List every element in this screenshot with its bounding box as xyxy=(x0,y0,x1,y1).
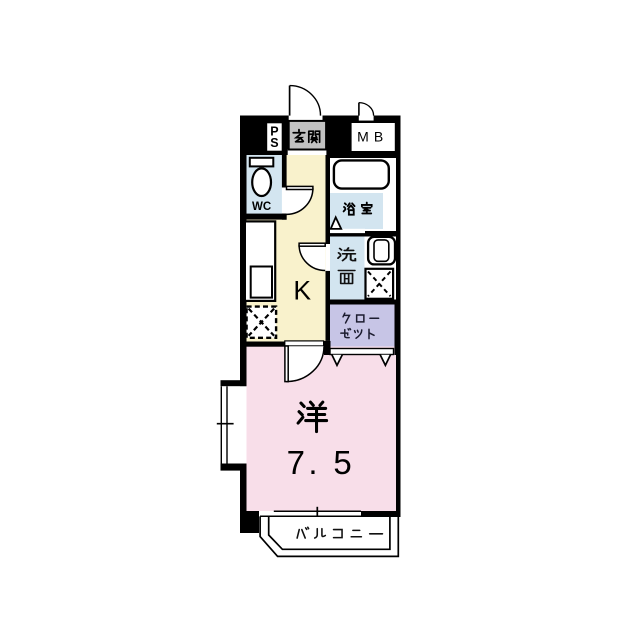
svg-text:WC: WC xyxy=(252,201,271,213)
svg-text:7: 7 xyxy=(287,444,305,481)
svg-text:.: . xyxy=(308,444,317,481)
svg-text:S: S xyxy=(270,136,278,150)
svg-text:5: 5 xyxy=(333,444,351,481)
svg-text:K: K xyxy=(293,276,311,306)
svg-text:M: M xyxy=(357,128,369,144)
svg-text:B: B xyxy=(374,128,383,144)
